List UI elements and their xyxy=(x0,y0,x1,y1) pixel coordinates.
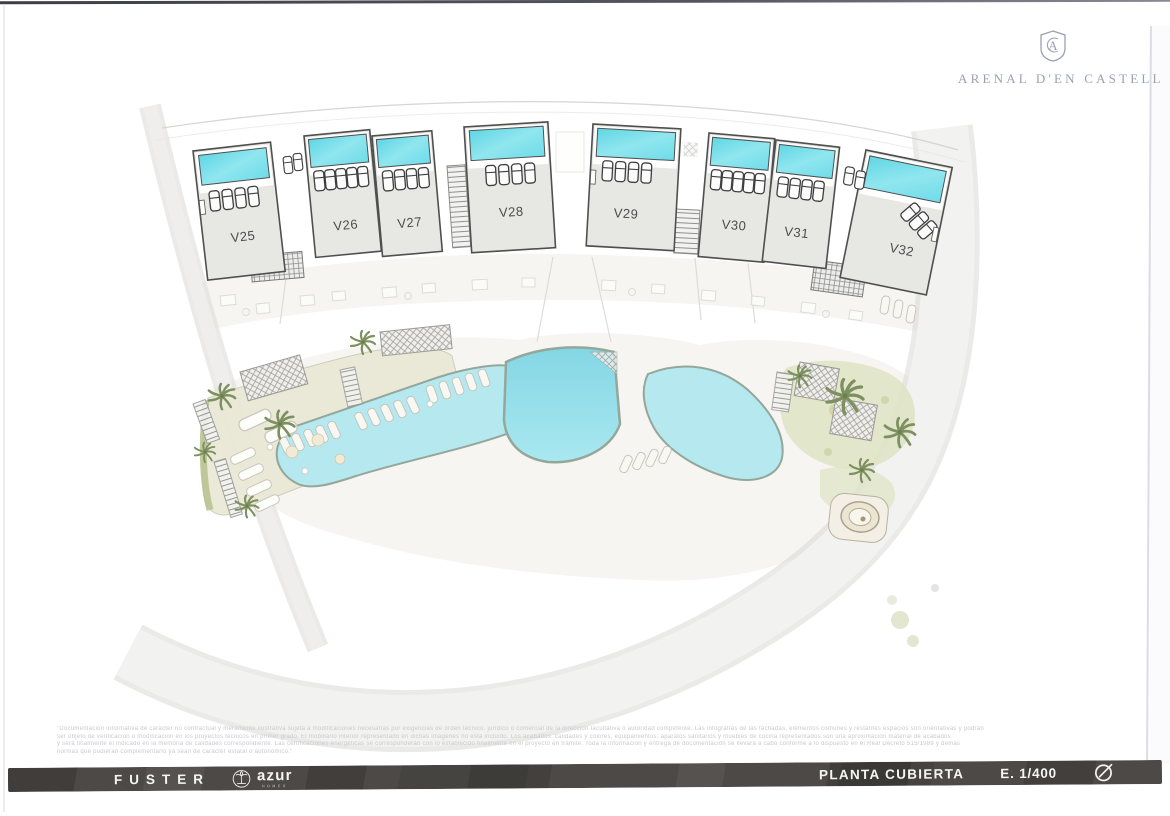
villa-unit-v28: V28 xyxy=(464,122,556,253)
villa-label: V25 xyxy=(230,228,256,246)
development-name: ARENAL D'EN CASTELL xyxy=(958,71,1148,87)
scale-label: E. 1/400 xyxy=(1000,765,1057,780)
shield-monogram-crest-icon: A xyxy=(1040,30,1066,62)
disclaimer-line: normas que pudieran complementarlo ya se… xyxy=(57,749,1119,757)
azur-wordmark-sub: HOMES xyxy=(262,785,288,789)
compass-north-icon xyxy=(1093,762,1114,783)
plan-sheet-page: V25 V26 V27 V28 xyxy=(0,0,1170,816)
villa-unit-v25: V25 xyxy=(193,142,285,280)
villa-unit-v29: V29 xyxy=(586,124,681,251)
palm-emblem-icon xyxy=(232,769,251,788)
villa-label: V28 xyxy=(499,204,525,220)
villa-unit-v27: V27 xyxy=(372,131,442,257)
footer-sheet-info: PLANTA CUBIERTA E. 1/400 xyxy=(819,762,1114,785)
legal-disclaimer: "Documentación informativa de carácter n… xyxy=(57,726,1119,756)
azur-wordmark: azur xyxy=(257,768,293,783)
disclaimer-line: y será finalmente el indicado en la memo… xyxy=(57,741,1119,749)
disclaimer-line: "Documentación informativa de carácter n… xyxy=(57,726,1119,734)
azur-logo: azur HOMES xyxy=(232,768,293,788)
villa-label: V29 xyxy=(613,205,638,221)
spa-circle xyxy=(827,492,889,544)
disclaimer-line: ser objeto de verificación o modificació… xyxy=(57,734,1119,742)
footer-brands: FUSTER azur HOMES xyxy=(114,768,293,789)
villa-unit-v26: V26 xyxy=(304,130,381,258)
site-plan-drawing: V25 V26 V27 V28 xyxy=(0,0,1170,816)
villa-unit-v30: V30 xyxy=(698,133,775,262)
fuster-logo: FUSTER xyxy=(114,771,210,787)
villa-label: V30 xyxy=(721,216,747,233)
villa-unit-v31: V31 xyxy=(762,140,839,268)
villa-label: V26 xyxy=(333,216,359,233)
villa-label: V27 xyxy=(397,214,423,231)
sheet-title: PLANTA CUBIERTA xyxy=(819,766,964,782)
header-brand: A ARENAL D'EN CASTELL xyxy=(958,30,1148,87)
pool-central xyxy=(504,347,620,462)
villa-label: V31 xyxy=(784,224,810,242)
